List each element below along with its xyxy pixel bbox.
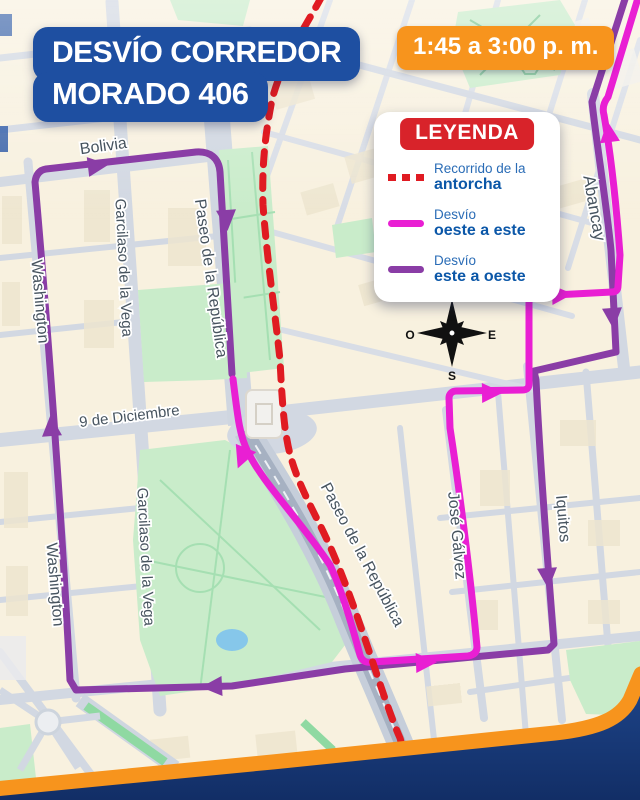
compass-west-label: O — [405, 328, 414, 342]
legend-torch-line2: antorcha — [434, 176, 526, 194]
legend: LEYENDA Recorrido de la antorcha Desvío … — [374, 112, 560, 302]
legend-east-west-line1: Desvío — [434, 253, 526, 268]
legend-item-east-west: Desvío este a oeste — [388, 253, 550, 286]
legend-east-west-line2: este a oeste — [434, 268, 526, 286]
legend-west-east-line2: oeste a este — [434, 222, 526, 240]
compass-south-label: S — [448, 369, 456, 383]
legend-item-torch: Recorrido de la antorcha — [388, 161, 550, 194]
legend-header: LEYENDA — [400, 118, 534, 150]
west-east-swatch-icon — [388, 220, 424, 227]
title-line-2: MORADO 406 — [33, 72, 268, 122]
legend-west-east-line1: Desvío — [434, 207, 526, 222]
east-west-swatch-icon — [388, 266, 424, 273]
legend-torch-line1: Recorrido de la — [434, 161, 526, 176]
torch-route-swatch-icon — [388, 174, 424, 181]
legend-item-west-east: Desvío oeste a este — [388, 207, 550, 240]
compass-east-label: E — [488, 328, 496, 342]
title-plate: DESVÍO CORREDOR MORADO 406 — [33, 27, 360, 122]
time-badge: 1:45 a 3:00 p. m. — [397, 26, 614, 70]
